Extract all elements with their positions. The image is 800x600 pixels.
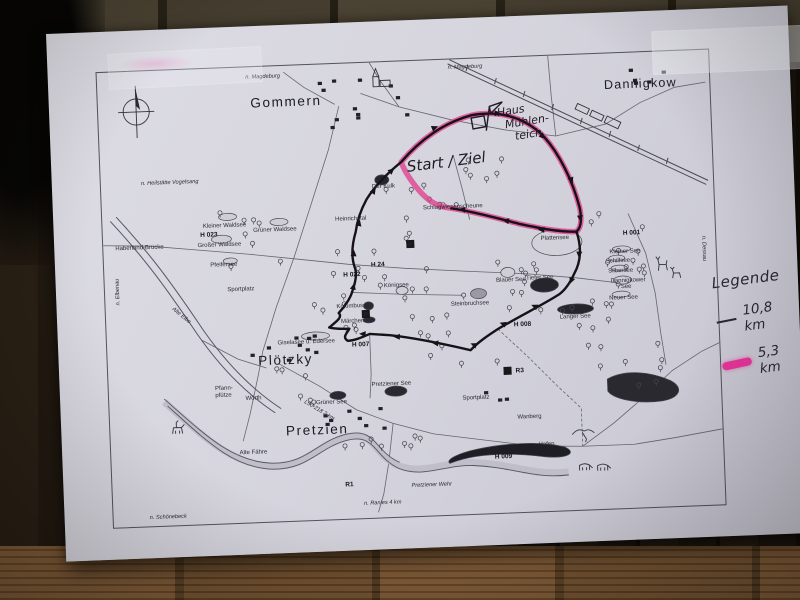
label-wehr: Pretziener Wehr — [411, 481, 453, 489]
label-tiefer-see: Tiefer See — [526, 275, 554, 282]
label-h009: H 009 — [495, 453, 513, 461]
label-r3: R3 — [515, 367, 524, 374]
label-koenigsee: Königsee — [384, 282, 410, 289]
label-town-dannigkow: Dannigkow — [604, 75, 677, 92]
label-sportplatz2: Sportplatz — [462, 395, 489, 402]
label-der-kulk: Der Kulk — [372, 183, 396, 190]
train-icon — [575, 103, 621, 129]
label-giselasee: Giselasee u. Edersee — [277, 338, 335, 346]
route-legend: Legende 10,8 km 5,3 km — [711, 264, 800, 393]
label-silbersee: Silbersee — [608, 268, 634, 275]
label-sportplatz1: Sportplatz — [227, 286, 254, 293]
label-dir-magdeburg2: n. Magdeburg — [448, 64, 484, 71]
label-plattensee: Plattensee — [541, 235, 570, 242]
label-pretziener-see: Pretziener See — [371, 381, 412, 389]
map-paper: P P Gommern Dannigkow Plötzky Pretzien n… — [46, 6, 800, 562]
label-steinbruchsee: Steinbruchsee — [451, 300, 490, 307]
label-h24: H 24 — [371, 261, 385, 269]
label-h007: H 007 — [352, 341, 370, 349]
label-blauer-see: Blauer See — [496, 277, 527, 284]
label-h008: H 008 — [514, 321, 532, 329]
cows-icon — [579, 463, 610, 472]
label-langer-see: Langer See — [560, 313, 592, 320]
label-dir-elbenau: n. Elbenau — [114, 279, 121, 306]
label-dir-dessau: n. Dessau — [700, 236, 707, 261]
label-wanberg: Wanberg — [517, 414, 541, 421]
label-r1: R1 — [345, 481, 354, 488]
label-alte-faehre: Alte Fähre — [240, 449, 269, 456]
legend-label-10km: 10,8 km — [741, 296, 800, 335]
map-canvas: P P Gommern Dannigkow Plötzky Pretzien n… — [97, 50, 726, 528]
label-pfann2: pfütze — [215, 392, 232, 399]
label-h023: H 023 — [200, 231, 218, 239]
label-pfeifersee: Pfeifersee — [210, 262, 238, 269]
route-pink-5km — [399, 110, 581, 238]
legend-item-black: 10,8 km — [715, 296, 800, 338]
compass-rose-icon — [117, 85, 155, 139]
church-icon — [372, 68, 390, 87]
label-kleiner-waldsee: Kleiner Waldsee — [203, 222, 247, 230]
black-route-swatch — [717, 318, 737, 324]
illustrations-layer: P P — [117, 57, 688, 488]
legend-label-5km: 5,3 km — [757, 340, 800, 377]
tape-strip-right — [651, 25, 800, 75]
label-gruener-see: Grüner See — [316, 399, 348, 406]
label-dir-heilstaette: n. Heilstätte Vogelsang — [141, 179, 200, 187]
label-hafen: Hafen — [538, 441, 554, 448]
legend-item-pink: 5,3 km — [720, 340, 800, 382]
label-dir-schoenebeck: n. Schönebeck — [150, 514, 189, 521]
photo-canvas: P P Gommern Dannigkow Plötzky Pretzien n… — [0, 0, 800, 600]
label-town-pretzien: Pretzien — [286, 421, 349, 438]
forest-layer — [216, 151, 667, 458]
label-h001: H 001 — [623, 229, 641, 237]
labels-layer: Gommern Dannigkow Plötzky Pretzien n. Ma… — [107, 55, 717, 522]
label-heinrichstal: Heinrichstal — [335, 216, 367, 223]
label-pfann1: Pfann- — [215, 385, 233, 392]
stork-icon — [572, 429, 595, 442]
label-neuer-see: Neuer See — [609, 295, 639, 302]
label-town-ploetzky: Plötzky — [258, 351, 313, 368]
parking-p1: P — [408, 242, 412, 248]
label-gruener-waldsee: Grüner Waldsee — [253, 226, 297, 234]
label-haberland: Haberland-Brücke — [115, 244, 164, 252]
label-start-ziel: Start / Ziel — [406, 148, 488, 176]
deer-icon — [656, 256, 681, 279]
label-dir-ranies: n. Ranies 4 km — [364, 499, 402, 506]
label-town-gommern: Gommern — [250, 93, 322, 111]
label-woerth: Wörth — [245, 395, 261, 402]
legend-title: Legende — [711, 264, 795, 292]
label-dannigkower-see-2: See — [621, 284, 633, 290]
label-schilfsee: Schilfsee — [606, 258, 631, 265]
pink-route-swatch — [722, 357, 753, 371]
label-maerchensee: Märchensee — [341, 318, 375, 325]
label-grosser-waldsee: Großer Waldsee — [197, 241, 242, 249]
label-kleiner-see: Kleiner See — [609, 248, 641, 255]
label-h022: H 022 — [343, 271, 361, 279]
map-frame: P P Gommern Dannigkow Plötzky Pretzien n… — [96, 49, 727, 529]
parking-icons — [359, 236, 512, 380]
